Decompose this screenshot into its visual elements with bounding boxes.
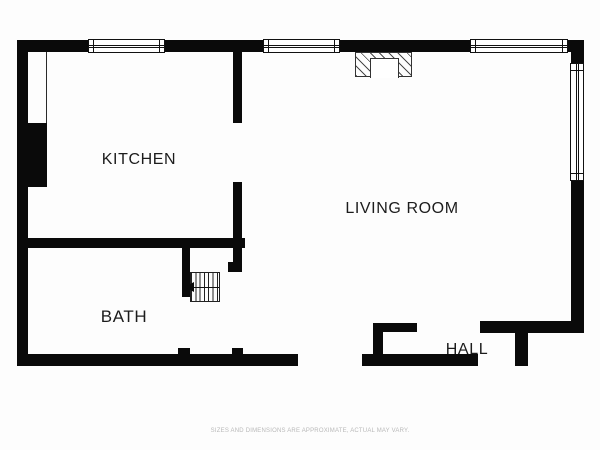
window-icon-top-1 [88,39,165,53]
window-pane-line [89,45,164,46]
window-pane-line [576,64,577,180]
wall-bottom-right [480,321,583,333]
door-jamb-bath [178,348,190,356]
wall-hall-right-stub [515,332,528,366]
firebox-opening [370,58,399,78]
floor-plan: KITCHEN LIVING ROOM BATH HALL SIZES AND … [0,0,600,450]
stairs-run-line [191,287,219,288]
room-label-kitchen: KITCHEN [102,151,176,169]
fireplace-icon [355,52,412,77]
window-frame-cap [571,173,583,174]
window-pane-line [89,47,164,48]
room-label-hall: HALL [446,341,488,359]
window-pane-line [471,47,567,48]
window-frame-cap [268,40,269,52]
window-icon-top-2 [263,39,340,53]
window-pane-line [264,45,339,46]
room-label-living-room: LIVING ROOM [345,200,458,218]
window-frame-cap [571,70,583,71]
wall-chimney-block [28,123,47,187]
stairs-direction-arrow-icon [185,282,194,292]
window-icon-top-3 [470,39,568,53]
wall-kitchen-bath [17,238,245,248]
window-frame-cap [334,40,335,52]
window-frame-cap [475,40,476,52]
wall-kitchen-living-lower [233,182,242,268]
wall-hall-nook-top [373,323,417,332]
window-frame-cap [562,40,563,52]
disclaimer-text: SIZES AND DIMENSIONS ARE APPROXIMATE, AC… [211,428,410,434]
window-frame-cap [159,40,160,52]
kitchen-nook-line [46,52,47,123]
wall-bottom-left [17,354,298,366]
room-label-bath: BATH [101,307,147,327]
window-frame-cap [93,40,94,52]
stairs-icon [190,272,220,302]
window-pane-line [471,45,567,46]
window-pane-line [578,64,579,180]
wall-left [17,40,28,366]
wall-kitchen-living-endcap [228,262,242,272]
wall-kitchen-living-upper [233,52,242,123]
wall-hall-nook-left [373,332,383,356]
window-icon-right [570,63,584,181]
window-pane-line [264,47,339,48]
door-jamb-landing [232,348,243,356]
